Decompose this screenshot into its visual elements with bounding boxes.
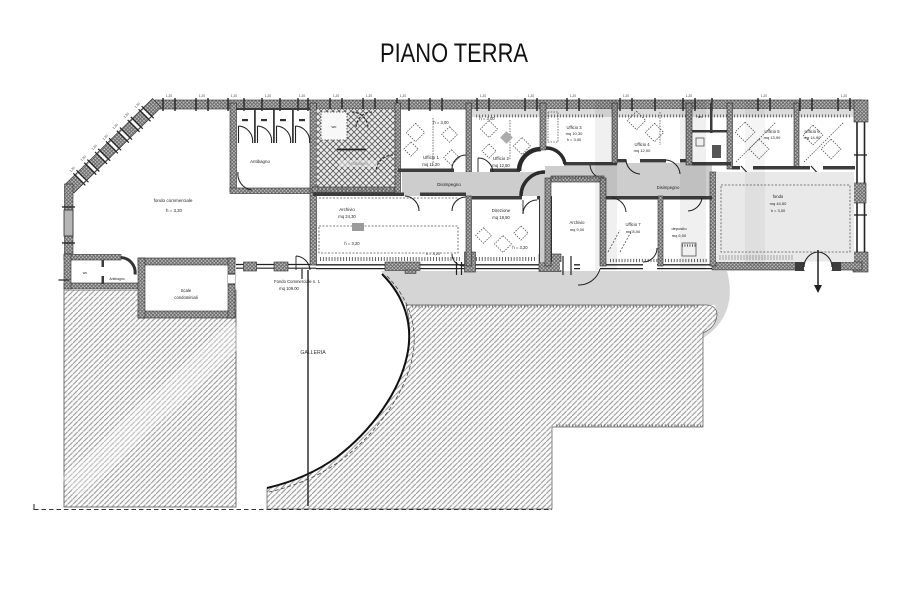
svg-text:Ufficio 1: Ufficio 1 [423,155,439,160]
svg-text:Ufficio 2: Ufficio 2 [493,156,509,161]
svg-text:h = 3,20: h = 3,20 [512,245,528,250]
svg-text:1,20: 1,20 [231,94,237,98]
svg-text:Direzione: Direzione [492,208,511,213]
svg-text:mq 8,00: mq 8,00 [626,229,641,234]
svg-text:fondo: fondo [773,194,784,199]
svg-text:h = 3,00: h = 3,00 [771,208,786,213]
svg-text:mq 24,30: mq 24,30 [338,214,356,219]
svg-text:wc: wc [83,271,88,275]
svg-text:1,20: 1,20 [570,94,576,98]
svg-text:h = 3,00: h = 3,00 [567,137,582,142]
svg-text:Archivio: Archivio [570,220,586,225]
svg-text:Fondo Commerciale n. 1: Fondo Commerciale n. 1 [274,279,321,284]
svg-text:1,20: 1,20 [299,94,305,98]
svg-text:1,20: 1,20 [166,94,172,98]
svg-text:Ufficio 4: Ufficio 4 [634,142,650,147]
svg-text:mq 13,90: mq 13,90 [764,135,781,140]
svg-text:mq 12,50: mq 12,50 [492,163,510,168]
svg-text:PIANO TERRA: PIANO TERRA [380,38,528,68]
svg-text:Disimpegno: Disimpegno [657,185,680,190]
svg-text:fondo commerciale: fondo commerciale [154,198,193,203]
svg-text:1,20: 1,20 [366,94,372,98]
svg-text:h = 3,00: h = 3,00 [433,120,449,125]
svg-text:Scale: Scale [181,288,192,293]
svg-text:1,20: 1,20 [528,94,534,98]
svg-text:mq 109.00: mq 109.00 [279,286,299,291]
svg-text:1,20: 1,20 [686,94,692,98]
svg-text:mq 18,50: mq 18,50 [492,215,510,220]
svg-text:1,20: 1,20 [265,94,271,98]
svg-text:mq 9,00: mq 9,00 [570,227,585,232]
svg-text:mq 11,20: mq 11,20 [422,162,440,167]
svg-text:1,20: 1,20 [199,94,205,98]
svg-text:Ufficio 3: Ufficio 3 [566,125,582,130]
svg-text:1,20: 1,20 [841,94,847,98]
svg-text:wc: wc [332,124,337,129]
svg-text:GALLERIA: GALLERIA [300,350,326,356]
svg-text:1,20: 1,20 [623,94,629,98]
svg-text:h = 3,20: h = 3,20 [344,241,360,246]
svg-text:1,20: 1,20 [480,94,486,98]
svg-text:Antibagno: Antibagno [250,159,270,164]
svg-text:mq 12,00: mq 12,00 [634,148,651,153]
svg-text:mq 44,50: mq 44,50 [770,201,787,206]
svg-text:1,20: 1,20 [761,94,767,98]
svg-text:Antibagno: Antibagno [109,277,124,281]
svg-text:h = 3,00: h = 3,00 [479,116,495,121]
svg-text:1,20: 1,20 [400,94,406,98]
svg-text:Archivio: Archivio [339,207,355,212]
svg-text:mq 10,30: mq 10,30 [566,131,583,136]
svg-text:Ufficio 7: Ufficio 7 [625,222,641,227]
svg-text:Disimpegno: Disimpegno [437,182,461,187]
svg-text:h = 3,20: h = 3,20 [166,208,183,213]
svg-text:h = 3,20: h = 3,20 [426,251,441,256]
svg-text:1,20: 1,20 [333,94,339,98]
svg-text:condominiali: condominiali [174,295,197,300]
